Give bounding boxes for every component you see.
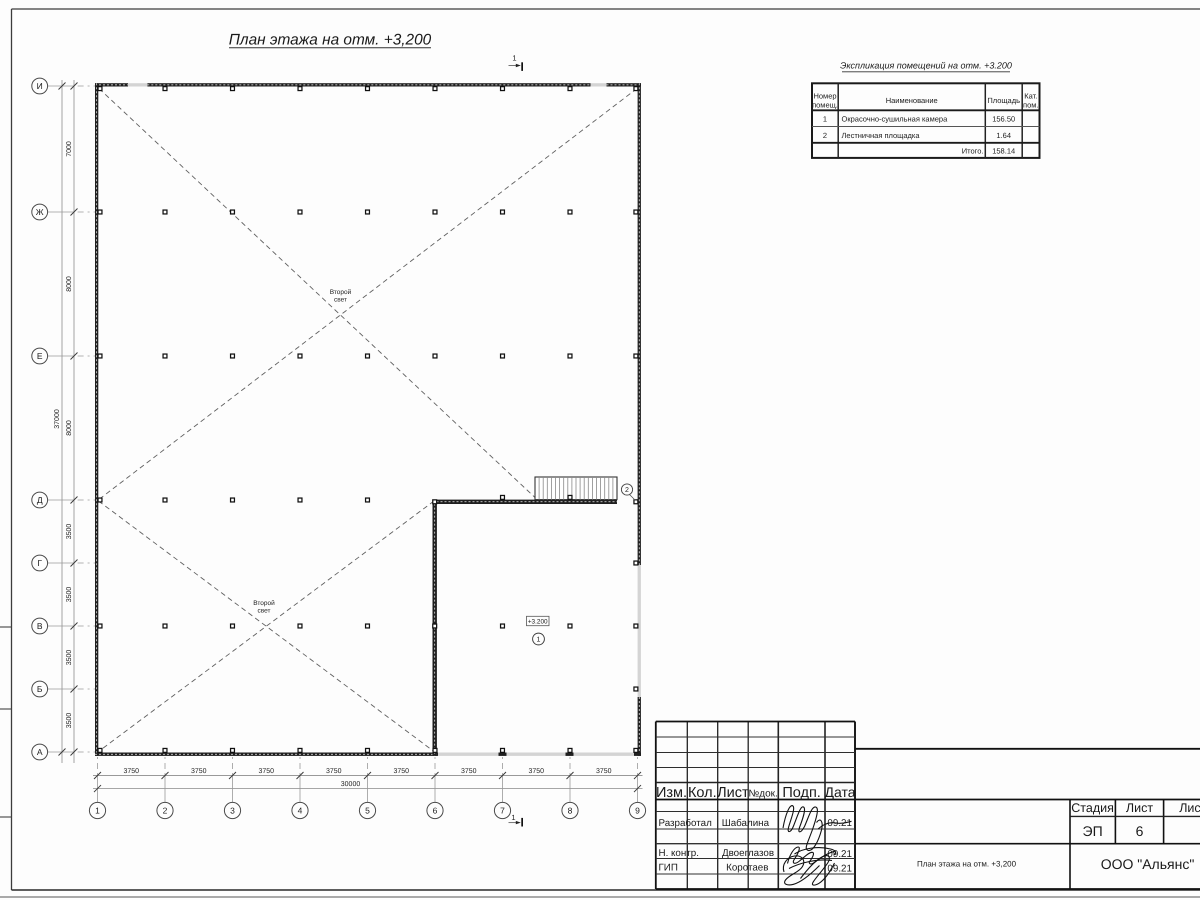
svg-text:8: 8 [568,806,573,816]
svg-text:2: 2 [625,487,629,494]
svg-text:8000: 8000 [66,420,73,436]
svg-text:ЭП: ЭП [1083,823,1103,839]
svg-text:1: 1 [537,637,541,644]
svg-text:7: 7 [500,806,505,816]
svg-text:Итого.: Итого. [962,147,984,156]
svg-text:1: 1 [512,54,516,63]
svg-text:3500: 3500 [66,524,73,540]
svg-text:Лестничная площадка: Лестничная площадка [842,131,921,140]
svg-text:6: 6 [1136,823,1144,839]
svg-text:Второй: Второй [330,289,352,296]
svg-text:ГИП: ГИП [659,863,678,874]
svg-text:План этажа на отм. +3,200: План этажа на отм. +3,200 [229,31,432,48]
svg-text:Второй: Второй [253,600,275,607]
svg-text:Разработал: Разработал [659,818,713,829]
svg-text:1: 1 [95,806,100,816]
svg-text:9: 9 [635,806,640,816]
svg-text:156.50: 156.50 [992,115,1015,124]
svg-text:В: В [37,621,43,631]
svg-text:Н. контр.: Н. контр. [659,848,699,859]
svg-text:3750: 3750 [258,768,274,775]
svg-text:Подп.: Подп. [782,785,821,801]
svg-text:3500: 3500 [66,650,73,666]
svg-text:Экспликация помещений на отм.: Экспликация помещений на отм. +3.200 [840,61,1012,71]
svg-text:Площадь: Площадь [987,96,1020,105]
svg-text:Д: Д [37,495,43,505]
svg-text:3750: 3750 [123,768,139,775]
svg-text:пом.: пом. [1023,100,1038,109]
svg-text:3750: 3750 [528,768,544,775]
svg-text:помещ.: помещ. [812,100,838,109]
svg-text:1: 1 [511,813,515,822]
svg-text:Стадия: Стадия [1071,801,1114,815]
svg-text:Листов: Листов [1179,801,1200,815]
svg-text:Кат.: Кат. [1024,91,1037,100]
svg-text:5: 5 [365,806,370,816]
svg-text:Окрасочно-сушильная камера: Окрасочно-сушильная камера [842,115,949,124]
svg-text:Коротаев: Коротаев [726,863,768,874]
svg-text:2: 2 [163,806,168,816]
svg-text:3750: 3750 [393,768,409,775]
svg-text:3500: 3500 [66,713,73,729]
svg-text:Кол.: Кол. [688,785,717,801]
svg-text:6: 6 [433,806,438,816]
svg-text:+3.200: +3.200 [528,619,548,626]
svg-text:1.64: 1.64 [996,131,1011,140]
svg-text:7000: 7000 [66,141,73,157]
svg-text:30000: 30000 [341,781,361,788]
svg-text:Е: Е [37,351,43,361]
svg-text:Б: Б [37,684,43,694]
svg-text:№док.: №док. [749,788,778,799]
svg-text:Дата: Дата [824,784,855,800]
svg-text:ООО "Альянс": ООО "Альянс" [1101,856,1195,872]
svg-text:свет: свет [334,297,347,304]
svg-text:3: 3 [230,806,235,816]
svg-text:1: 1 [823,115,827,124]
svg-text:37000: 37000 [54,409,61,429]
svg-text:Шабалина: Шабалина [722,818,770,829]
svg-text:Лист: Лист [1126,801,1153,815]
svg-text:3750: 3750 [191,768,207,775]
svg-text:свет: свет [257,608,270,615]
svg-text:Наименование: Наименование [886,96,938,105]
svg-text:09.21: 09.21 [827,849,852,860]
svg-text:8000: 8000 [66,276,73,292]
svg-text:И: И [37,81,43,91]
svg-text:План этажа на отм. +3,200: План этажа на отм. +3,200 [917,859,1017,868]
svg-text:Ж: Ж [36,207,44,217]
svg-text:Двоеглазов: Двоеглазов [722,848,774,859]
svg-text:3750: 3750 [596,768,612,775]
svg-text:Изм.: Изм. [656,785,687,801]
svg-text:4: 4 [298,806,303,816]
svg-text:Номер: Номер [813,91,836,100]
svg-text:158.14: 158.14 [992,147,1015,156]
svg-text:Г: Г [37,558,42,568]
svg-text:Лист: Лист [717,785,749,801]
svg-text:3500: 3500 [66,587,73,603]
svg-text:2: 2 [823,131,827,140]
svg-text:3750: 3750 [326,768,342,775]
svg-text:А: А [37,747,43,757]
svg-text:3750: 3750 [461,768,477,775]
